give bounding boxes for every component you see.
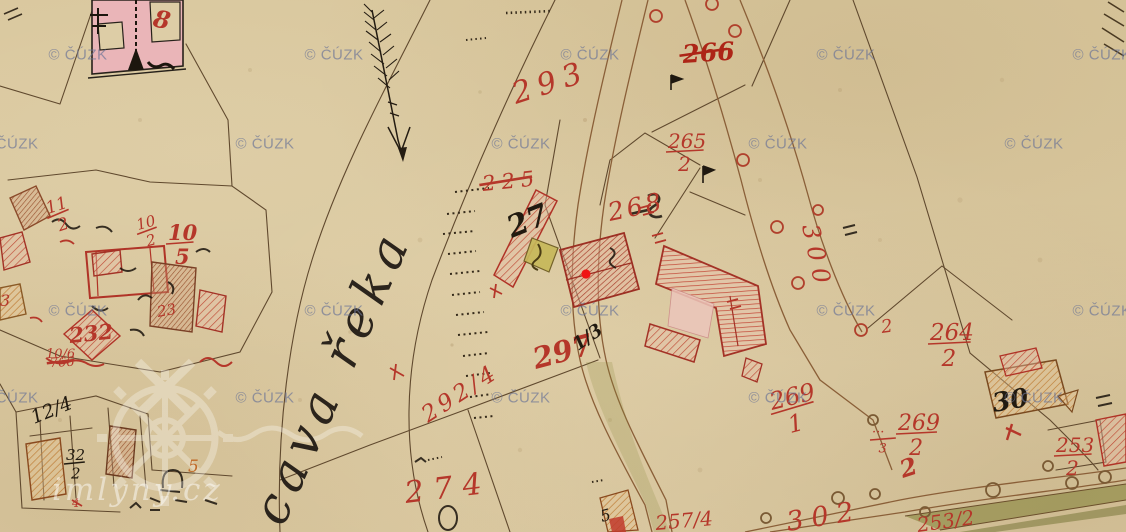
svg-text:2: 2 (70, 464, 81, 482)
parcel-number: 300 (796, 221, 837, 292)
svg-text:3: 3 (879, 441, 887, 456)
parcel-number: 302 (784, 495, 863, 532)
svg-text:293: 293 (507, 54, 593, 112)
svg-text:292/4: 292/4 (416, 359, 503, 428)
parcel-number: 766 (46, 355, 75, 371)
svg-text:274: 274 (402, 466, 494, 511)
small-building-1 (742, 358, 762, 382)
parcel-number: 4 (71, 496, 80, 510)
river-name: cava řeka (241, 219, 423, 532)
parcel-number: 293 (507, 54, 593, 112)
svg-text:···: ··· (872, 425, 884, 440)
map-marker (581, 269, 590, 278)
svg-text:3: 3 (0, 291, 10, 310)
road-lines (572, 0, 1126, 532)
parcel-number: 292/4 (416, 359, 503, 428)
parcel-number: 23 (155, 300, 178, 321)
parcel-number: 2642 (928, 320, 974, 372)
parcel-number: 266 (678, 36, 735, 69)
parcel-number: 225 (478, 166, 541, 196)
svg-text:302: 302 (784, 495, 863, 532)
corner-hatch (1102, 2, 1124, 56)
svg-text:2: 2 (941, 346, 957, 372)
svg-text:232: 232 (67, 319, 114, 349)
corner-tick-marks (4, 8, 22, 20)
parcel-number: 257/4 (653, 506, 714, 532)
svg-text:32: 32 (66, 446, 85, 464)
parcel-number: 2 (879, 316, 894, 339)
historic-cadastral-map-canvas[interactable]: cava řeka 82932662652268225272971/3292/4… (0, 0, 1126, 532)
svg-text:300: 300 (796, 221, 837, 292)
parcel-number: 3 (0, 291, 10, 310)
parcel-number: 2652 (666, 129, 706, 176)
right-edge-building (1096, 414, 1126, 466)
parcel-number: 274 (402, 466, 494, 511)
svg-text:2: 2 (1065, 456, 1079, 480)
svg-text:2: 2 (879, 316, 894, 339)
central-building (560, 233, 639, 307)
parcel-number: 268 (604, 187, 666, 227)
parcel-number: 232 (67, 319, 114, 349)
svg-text:5: 5 (188, 457, 199, 477)
svg-text:268: 268 (604, 187, 666, 227)
svg-text:5: 5 (175, 244, 190, 269)
svg-text:23: 23 (155, 300, 178, 321)
parcel-number: 2691 (765, 378, 825, 443)
map-linework: cava řeka 82932662652268225272971/3292/4… (0, 0, 1126, 532)
parcel-number: 30 (990, 383, 1031, 419)
svg-text:257/4: 257/4 (653, 506, 714, 532)
parcel-number: 322 (64, 446, 85, 482)
svg-text:12/4: 12/4 (28, 392, 76, 428)
feather-arrow (364, 4, 410, 162)
farmstead-l-building (645, 246, 766, 362)
parcel-number: 5 (188, 457, 199, 477)
svg-text:1: 1 (785, 408, 807, 439)
svg-text:4: 4 (71, 496, 80, 510)
svg-text:30: 30 (990, 383, 1031, 419)
parcel-number: 105 (166, 220, 198, 269)
svg-text:2: 2 (677, 152, 691, 176)
parcel-number: 12/4 (28, 392, 76, 428)
svg-text:2: 2 (54, 214, 71, 237)
parcel-number: ···3 (870, 425, 896, 456)
